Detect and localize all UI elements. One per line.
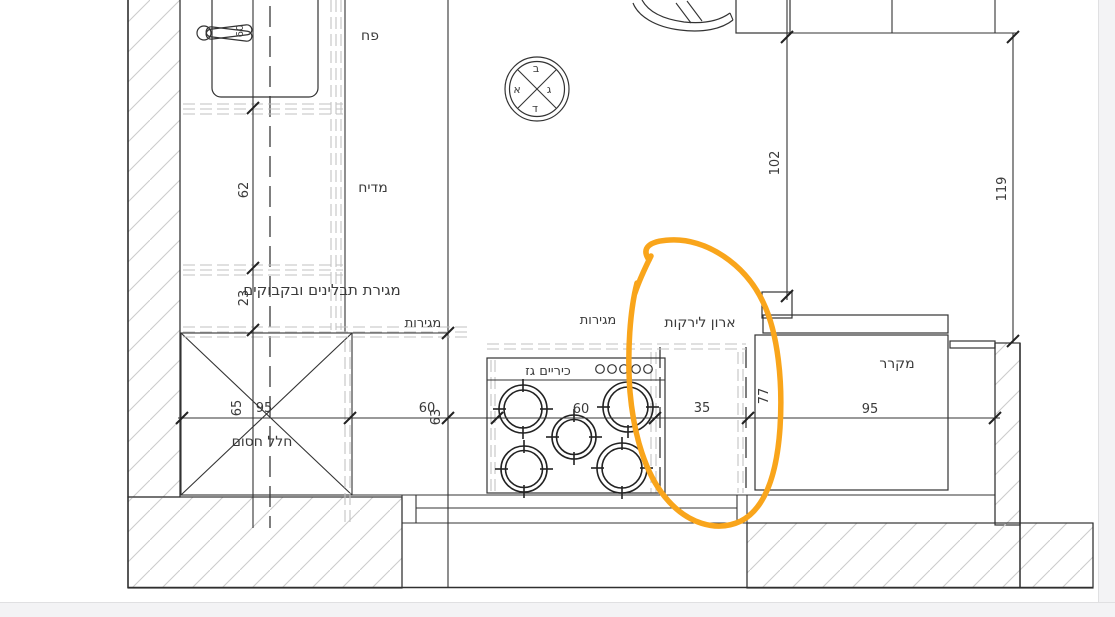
cooktop-label: כיריים גז [525,364,571,379]
dim-veg-cabinet-depth: 77 [757,388,772,405]
floor-plan-svg: חלל חסום [0,0,1115,616]
right-wall [995,343,1020,525]
spice-drawer-label: מגירת תבלינים ובקבוקים [243,281,400,299]
bottom-right-wall [747,523,1093,588]
burners [493,376,659,499]
side-ledge [950,341,995,348]
dishwasher-label: מדיח [358,180,387,196]
compass-letter-right: ג [547,83,552,96]
refrigerator-area: מקרר [755,292,995,490]
dim-blocked-length: 95 [256,401,273,416]
viewer-bottom-margin [0,602,1115,617]
sink: 60 [197,0,318,97]
compass-letter-bottom: ד [532,102,538,115]
drawers-left-label: מגירות [405,316,442,331]
compass-letter-left: א [513,83,520,96]
dim-veg-cabinet-width: 35 [694,401,711,416]
compass-symbol: ב א ג ד [505,57,569,121]
trash-label: פח [361,28,379,44]
dim-clearance-right: 119 [995,177,1010,202]
chair [633,0,790,33]
dim-fridge-width: 95 [862,402,879,417]
viewer-right-margin [1098,0,1115,616]
dim-cooktop-width: 60 [573,402,590,417]
dim-island-seg-b: 63 [429,409,444,426]
dim-left-run-depth: 62 [237,182,252,199]
compass-letter-top: ב [533,62,539,75]
dim-sink-width: 60 [235,25,246,38]
dim-clearance-left: 102 [768,151,783,176]
dim-blocked-width: 65 [230,400,245,417]
left-wall [128,0,180,497]
highlight-annotation [629,240,781,526]
blocked-space-label: חלל חסום [232,434,293,450]
cooktop-knobs [596,365,653,374]
bottom-left-wall [128,497,402,588]
drawers-center-label: מגירות [580,313,617,328]
room-labels: פח מדיח מגירת תבלינים ובקבוקים מגירות מג… [243,28,735,331]
vegetable-cabinet-label: ארון לירקות [664,315,735,331]
cooktop: כיריים גז [487,358,665,499]
fridge-outline [755,335,948,490]
dim-spice-depth: 23 [237,290,252,307]
refrigerator-label: מקרר [879,356,914,372]
